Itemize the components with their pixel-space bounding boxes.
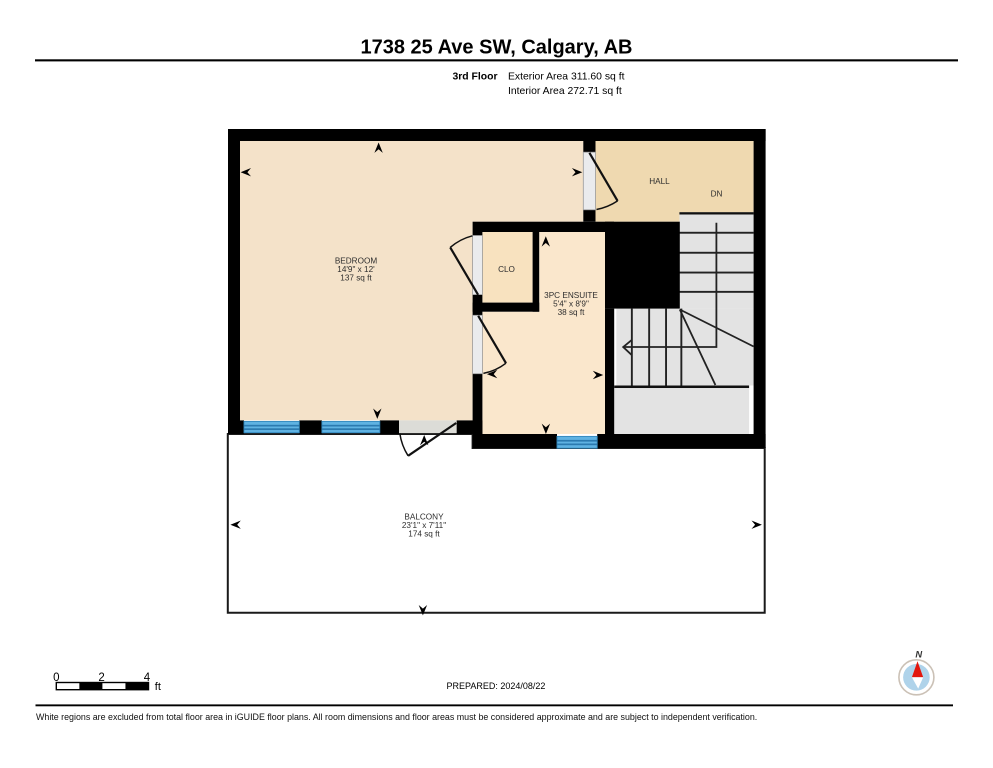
svg-text:1738 25 Ave SW, Calgary, AB: 1738 25 Ave SW, Calgary, AB — [361, 37, 633, 59]
svg-text:HALL: HALL — [649, 177, 670, 186]
svg-text:3PC ENSUITE: 3PC ENSUITE — [544, 291, 598, 300]
svg-text:White regions are excluded fro: White regions are excluded from total fl… — [36, 712, 757, 722]
svg-text:174 sq ft: 174 sq ft — [408, 530, 440, 539]
svg-text:N: N — [915, 648, 922, 659]
svg-text:Interior Area 272.71 sq ft: Interior Area 272.71 sq ft — [508, 86, 622, 97]
svg-text:137 sq ft: 137 sq ft — [340, 274, 372, 283]
svg-text:38 sq ft: 38 sq ft — [558, 308, 586, 317]
svg-text:3rd Floor: 3rd Floor — [452, 72, 497, 83]
svg-text:PREPARED: 2024/08/22: PREPARED: 2024/08/22 — [447, 681, 546, 691]
svg-text:CLO: CLO — [498, 265, 515, 274]
svg-text:ft: ft — [155, 681, 161, 693]
svg-text:DN: DN — [711, 190, 723, 199]
svg-text:Exterior Area 311.60 sq ft: Exterior Area 311.60 sq ft — [508, 72, 625, 83]
